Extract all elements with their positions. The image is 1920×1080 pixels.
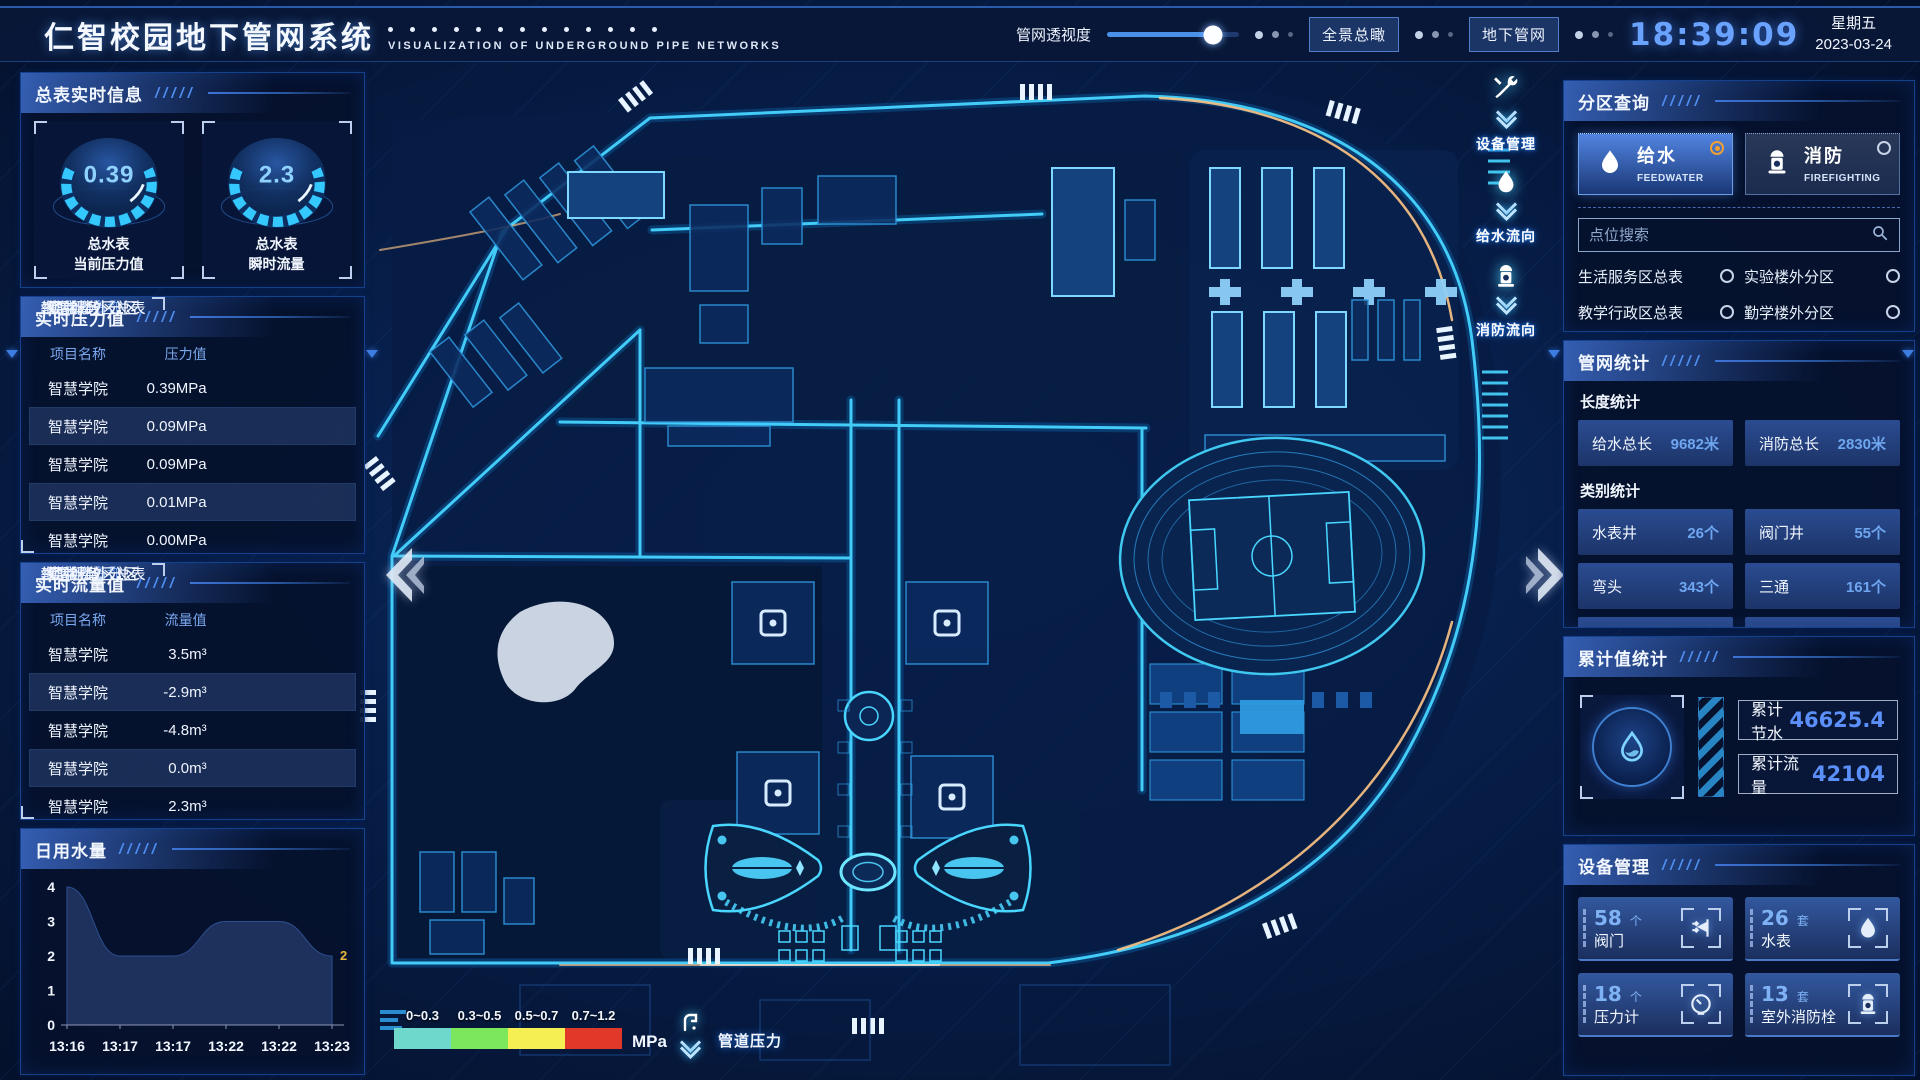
- map-tool-feedwater-flow[interactable]: 给水流向: [1458, 168, 1554, 246]
- svg-text:2: 2: [340, 948, 347, 963]
- point-search[interactable]: [1578, 218, 1900, 252]
- radio-icon[interactable]: [1720, 269, 1734, 283]
- table-row[interactable]: 智慧学院 生活服务区总表 3.5m³: [29, 635, 356, 673]
- zone-item[interactable]: 生活服务区总表: [1578, 258, 1734, 294]
- zone-item[interactable]: 砺学楼外分区: [1578, 330, 1734, 332]
- panel-title: 分区查询: [1578, 89, 1650, 114]
- slashes-decoration: /////: [1662, 857, 1703, 874]
- pipe-pressure-label: 管道压力: [718, 1030, 782, 1051]
- radio-icon[interactable]: [1877, 141, 1891, 155]
- svg-text:13:17: 13:17: [155, 1038, 191, 1054]
- table-row[interactable]: 智慧学院 勤学楼外分区 0.0m³: [29, 749, 356, 787]
- cumulative-flow: 累计流量 42104: [1738, 754, 1898, 794]
- decoration-arrow: [1902, 350, 1914, 358]
- svg-text:13:16: 13:16: [49, 1038, 85, 1054]
- gauge-label: 总水表 当前压力值: [34, 234, 184, 275]
- svg-text:3: 3: [47, 914, 55, 930]
- slashes-decoration: /////: [137, 575, 178, 592]
- stat-valve-wells: 阀门井 55个: [1745, 509, 1900, 555]
- radio-icon[interactable]: [1720, 305, 1734, 319]
- slashes-decoration: /////: [1680, 649, 1721, 666]
- underground-pipes-button[interactable]: 地下管网: [1469, 17, 1559, 52]
- table-row[interactable]: 智慧学院 勤学楼外分区 0.01MPa: [29, 483, 356, 521]
- svg-text:13:23: 13:23: [314, 1038, 350, 1054]
- carousel-left-arrow[interactable]: [376, 544, 426, 606]
- category-section-label: 类别统计: [1564, 470, 1914, 509]
- dots-decoration: [1415, 31, 1453, 39]
- gauge-label: 总水表 瞬时流量: [202, 234, 352, 275]
- stat-tees: 三通 161个: [1745, 563, 1900, 609]
- realtime-pressure-panel: 实时压力值 ///// 项目名称 设备名称 压力值 智慧学院 生活服务区总表 0…: [20, 296, 365, 554]
- zone-item[interactable]: 教学行政区总表: [1578, 294, 1734, 330]
- stat-feedwater-length: 给水总长 9682米: [1578, 420, 1733, 466]
- water-meter-icon: [1848, 908, 1888, 948]
- water-badge: [1580, 695, 1684, 799]
- device-card-pressure-gauges[interactable]: 18个 压力计: [1578, 973, 1733, 1037]
- app-subtitle: VISUALIZATION OF UNDERGROUND PIPE NETWOR…: [388, 40, 781, 52]
- device-card-water-meters[interactable]: 26套 水表: [1745, 897, 1900, 961]
- svg-text:2: 2: [47, 948, 55, 964]
- tab-feedwater[interactable]: 给水 FEEDWATER: [1578, 133, 1733, 195]
- device-card-valves[interactable]: 58个 阀门: [1578, 897, 1733, 961]
- radio-icon[interactable]: [1710, 141, 1724, 155]
- panorama-button[interactable]: 全景总瞰: [1309, 17, 1399, 52]
- search-input[interactable]: [1589, 227, 1871, 244]
- radio-icon[interactable]: [1886, 269, 1900, 283]
- legend-range-labels: 0~0.3 0.3~0.5 0.5~0.7 0.7~1.2: [394, 1008, 622, 1023]
- svg-text:13:22: 13:22: [261, 1038, 297, 1054]
- pipe-opacity-label: 管网透视度: [1016, 24, 1091, 45]
- slashes-decoration: /////: [137, 309, 178, 326]
- slashes-decoration: /////: [119, 841, 160, 858]
- device-management-panel: 设备管理 ///// 58个 阀门 26套 水: [1563, 844, 1915, 1076]
- pipe-pressure-icon: [668, 1010, 712, 1056]
- pressure-gauge: 0.39 总水表 当前压力值: [34, 121, 184, 279]
- panel-title: 实时流量值: [35, 571, 125, 596]
- realtime-flow-panel: 实时流量值 ///// 项目名称 设备名称 流量值 智慧学院 生活服务区总表 3…: [20, 562, 365, 820]
- cumulative-stats-panel: 累计值统计 ///// 累计节水 46625.4 累: [1563, 636, 1915, 836]
- daily-water-panel: 日用水量 ///// 0123413:1613:1713:1713:2213:2…: [20, 828, 365, 1075]
- app-title: 仁智校园地下管网系统: [44, 13, 374, 57]
- svg-text:13:17: 13:17: [102, 1038, 138, 1054]
- hatch-decoration: [1698, 697, 1724, 797]
- stat-meter-wells: 水表井 26个: [1578, 509, 1733, 555]
- svg-text:13:22: 13:22: [208, 1038, 244, 1054]
- dots-decoration: [1255, 31, 1293, 39]
- meter-info-panel: 总表实时信息 ///// 0.39 总水表 当: [20, 72, 365, 288]
- clock: 18:39:09: [1629, 17, 1799, 53]
- stat-clipped: [1578, 617, 1733, 628]
- radio-icon[interactable]: [1886, 305, 1900, 319]
- valve-icon: [1681, 908, 1721, 948]
- table-row[interactable]: 智慧学院 实验楼外分区 0.09MPa: [29, 407, 356, 445]
- table-row[interactable]: 智慧学院 砺学楼外分区 2.3m³: [29, 787, 356, 820]
- stat-fire-length: 消防总长 2830米: [1745, 420, 1900, 466]
- hydrant-icon: [1848, 984, 1888, 1024]
- stat-elbows: 弯头 343个: [1578, 563, 1733, 609]
- slashes-decoration: /////: [155, 85, 196, 102]
- table-row[interactable]: 智慧学院 生活服务区总表 0.39MPa: [29, 369, 356, 407]
- dots-decoration: [388, 27, 781, 32]
- legend-color-bar: [394, 1028, 622, 1049]
- decoration-arrow: [6, 350, 18, 358]
- length-section-label: 长度统计: [1564, 381, 1914, 420]
- stat-clipped: [1745, 617, 1900, 628]
- dots-decoration: [1575, 31, 1613, 39]
- device-card-hydrants[interactable]: 13套 室外消防栓: [1745, 973, 1900, 1037]
- map-tool-fire-flow[interactable]: 消防流向: [1458, 262, 1554, 340]
- decoration-arrow: [1548, 350, 1560, 358]
- daily-water-chart: 0123413:1613:1713:1713:2213:2213:232: [31, 873, 352, 1065]
- svg-text:2.3: 2.3: [258, 162, 294, 189]
- cumulative-saved-water: 累计节水 46625.4: [1738, 700, 1898, 740]
- hydrant-icon: [1762, 147, 1792, 182]
- table-row[interactable]: 智慧学院 教学行政区总表 -4.8m³: [29, 711, 356, 749]
- table-row[interactable]: 智慧学院 砺学楼外分区 0.00MPa: [29, 521, 356, 554]
- date: 2023-03-24: [1815, 35, 1892, 55]
- weekday: 星期五: [1815, 14, 1892, 34]
- slashes-decoration: /////: [1662, 353, 1703, 370]
- svg-text:0.39: 0.39: [83, 162, 134, 189]
- flow-gauge: 2.3 总水表 瞬时流量: [202, 121, 352, 279]
- search-icon[interactable]: [1871, 224, 1889, 247]
- panel-title: 实时压力值: [35, 305, 125, 330]
- svg-text:4: 4: [47, 879, 55, 895]
- panel-title: 总表实时信息: [35, 81, 143, 106]
- zone-item[interactable]: 宿舍区泵房: [1744, 330, 1900, 332]
- pipe-opacity-slider[interactable]: [1107, 32, 1239, 37]
- flow-table: 项目名称 设备名称 流量值 智慧学院 生活服务区总表 3.5m³ 智慧学院 实验…: [21, 603, 364, 820]
- zone-query-panel: 分区查询 ///// 给水 FEEDWATER: [1563, 80, 1915, 332]
- map-tool-device-management[interactable]: 设备管理: [1458, 72, 1554, 154]
- legend-unit: MPa: [632, 1032, 667, 1052]
- slider-handle[interactable]: [1203, 25, 1222, 44]
- panel-title: 设备管理: [1578, 853, 1650, 878]
- panel-title: 累计值统计: [1578, 645, 1668, 670]
- zone-item[interactable]: 勤学楼外分区: [1744, 294, 1900, 330]
- decoration-arrow: [366, 350, 378, 358]
- svg-text:0: 0: [47, 1017, 55, 1033]
- table-row[interactable]: 智慧学院 实验楼外分区 -2.9m³: [29, 673, 356, 711]
- water-drop-icon: [1592, 707, 1672, 787]
- pressure-legend: 0~0.3 0.3~0.5 0.5~0.7 0.7~1.2 MPa 管道压力: [380, 1008, 980, 1072]
- svg-text:1: 1: [47, 983, 55, 999]
- pressure-table: 项目名称 设备名称 压力值 智慧学院 生活服务区总表 0.39MPa 智慧学院 …: [21, 337, 364, 554]
- tab-firefighting[interactable]: 消防 FIREFIGHTING: [1745, 133, 1900, 195]
- slashes-decoration: /////: [1662, 93, 1703, 110]
- water-drop-icon: [1595, 147, 1625, 182]
- header-bar: 仁智校园地下管网系统 VISUALIZATION OF UNDERGROUND …: [0, 6, 1920, 62]
- pressure-gauge-icon: [1681, 984, 1721, 1024]
- table-row[interactable]: 智慧学院 教学行政区总表 0.09MPa: [29, 445, 356, 483]
- panel-title: 日用水量: [35, 837, 107, 862]
- pipe-stats-panel: 管网统计 ///// 长度统计 给水总长 9682米 消防总长 2830米 类别…: [1563, 340, 1915, 628]
- panel-title: 管网统计: [1578, 349, 1650, 374]
- zone-item[interactable]: 实验楼外分区: [1744, 258, 1900, 294]
- dashboard-stage: 仁智校园地下管网系统 VISUALIZATION OF UNDERGROUND …: [0, 0, 1920, 1080]
